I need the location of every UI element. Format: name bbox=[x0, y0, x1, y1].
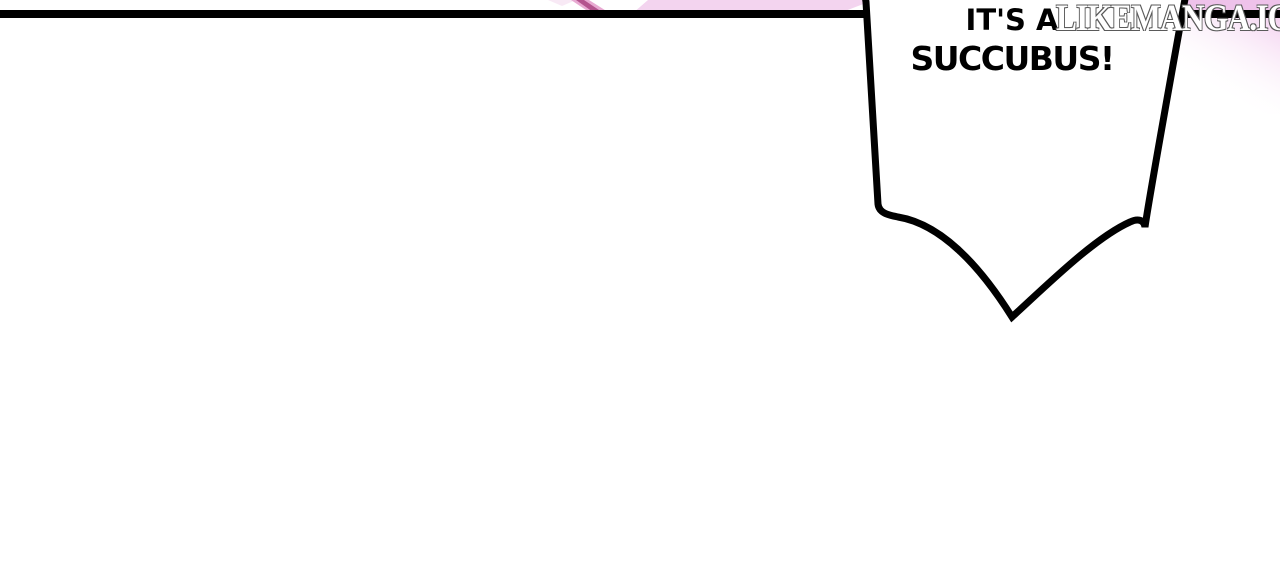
pink-artwork-sliver bbox=[548, 0, 576, 6]
comic-page: IT'S A SUCCUBUS! LIKEMANGA.IO bbox=[0, 0, 1280, 578]
speech-text-line-2: SUCCUBUS! bbox=[892, 38, 1132, 80]
site-watermark: LIKEMANGA.IO bbox=[1056, 0, 1277, 40]
